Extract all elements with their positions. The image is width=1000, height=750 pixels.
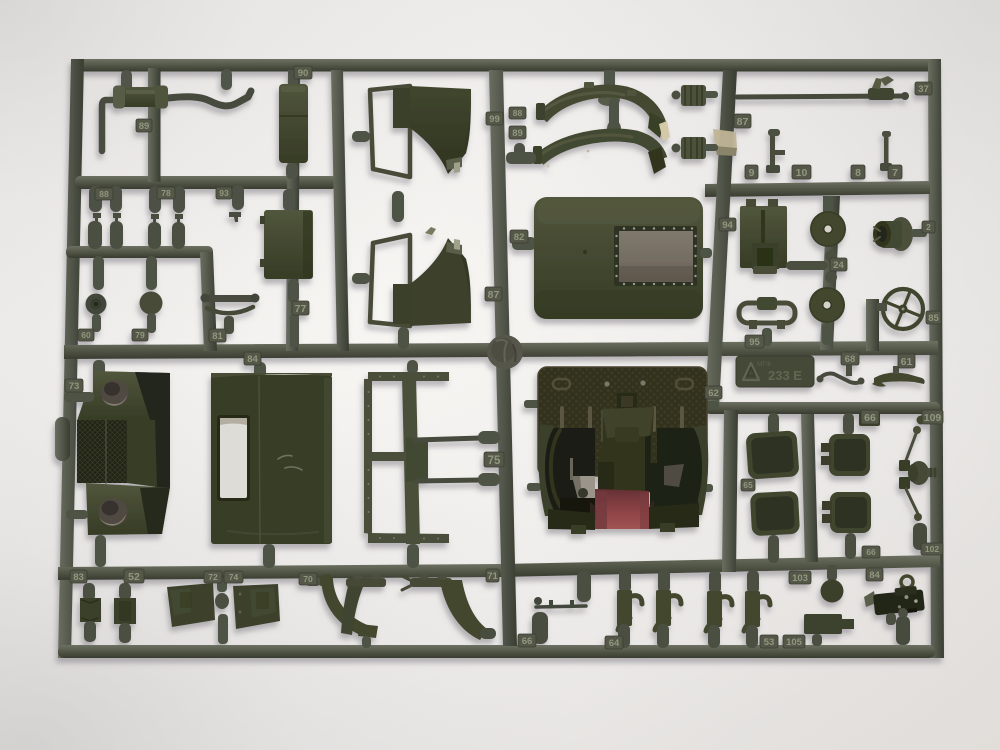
svg-text:78: 78: [161, 188, 171, 198]
svg-text:103: 103: [792, 573, 808, 584]
svg-text:93: 93: [219, 188, 229, 198]
svg-text:75: 75: [488, 455, 501, 467]
svg-text:109: 109: [924, 412, 942, 424]
svg-text:90: 90: [298, 68, 309, 79]
svg-text:87: 87: [737, 116, 749, 128]
svg-text:89: 89: [512, 128, 523, 139]
svg-text:74: 74: [229, 572, 239, 582]
svg-text:94: 94: [722, 220, 733, 231]
svg-text:37: 37: [918, 84, 929, 95]
svg-text:233 Е: 233 Е: [768, 368, 802, 383]
svg-text:102: 102: [925, 544, 939, 554]
svg-text:66: 66: [522, 636, 533, 647]
svg-text:88: 88: [513, 108, 523, 118]
svg-text:95: 95: [749, 337, 760, 348]
svg-text:71: 71: [487, 571, 498, 582]
svg-text:73: 73: [69, 381, 80, 392]
svg-text:88: 88: [99, 189, 109, 199]
svg-text:82: 82: [514, 232, 525, 243]
svg-text:52: 52: [128, 571, 140, 583]
svg-text:53: 53: [764, 637, 775, 648]
svg-text:24: 24: [833, 260, 844, 271]
svg-text:60: 60: [81, 330, 91, 340]
svg-text:64: 64: [609, 638, 620, 649]
svg-text:68: 68: [845, 354, 856, 365]
svg-text:МГФ: МГФ: [757, 361, 771, 368]
svg-text:72: 72: [208, 572, 218, 582]
svg-text:89: 89: [139, 121, 150, 132]
svg-text:2: 2: [926, 222, 931, 232]
svg-text:99: 99: [489, 114, 500, 125]
svg-text:8: 8: [855, 167, 861, 179]
svg-text:105: 105: [786, 637, 803, 648]
svg-text:61: 61: [901, 356, 913, 368]
svg-text:62: 62: [708, 388, 719, 399]
svg-text:70: 70: [303, 574, 313, 584]
svg-text:10: 10: [796, 167, 808, 179]
svg-text:83: 83: [73, 572, 84, 583]
svg-text:66: 66: [866, 547, 876, 557]
svg-text:84: 84: [247, 354, 258, 365]
svg-text:9: 9: [749, 167, 755, 179]
svg-text:87: 87: [488, 289, 500, 301]
svg-text:85: 85: [928, 313, 939, 324]
svg-text:77: 77: [295, 303, 307, 315]
svg-text:66: 66: [864, 412, 876, 424]
svg-text:81: 81: [212, 331, 223, 342]
svg-text:65: 65: [743, 480, 753, 490]
svg-text:7: 7: [892, 167, 898, 179]
svg-text:84: 84: [869, 570, 880, 581]
svg-text:79: 79: [135, 330, 145, 340]
